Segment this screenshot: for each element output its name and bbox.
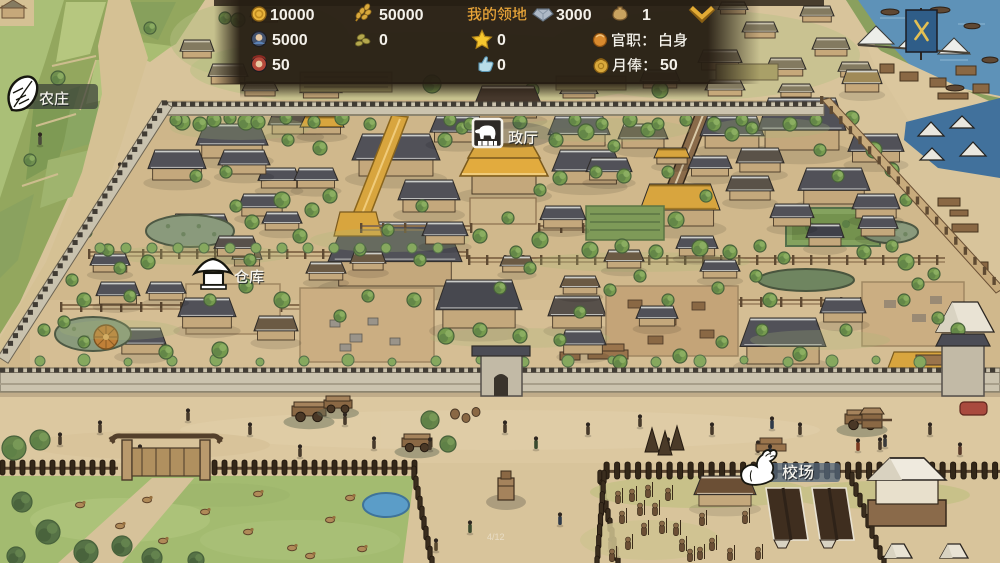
svg-text:50000: 50000 [379, 7, 424, 24]
svg-text:0: 0 [497, 57, 506, 74]
svg-text:0: 0 [497, 32, 506, 49]
svg-text:5000: 5000 [272, 32, 308, 49]
svg-text:50: 50 [660, 57, 678, 74]
svg-text:50: 50 [272, 57, 290, 74]
svg-text:10000: 10000 [270, 7, 315, 24]
svg-text:1: 1 [642, 7, 651, 24]
svg-text:4/12: 4/12 [487, 532, 505, 542]
svg-text:3000: 3000 [556, 7, 592, 24]
svg-text:0: 0 [379, 32, 388, 49]
